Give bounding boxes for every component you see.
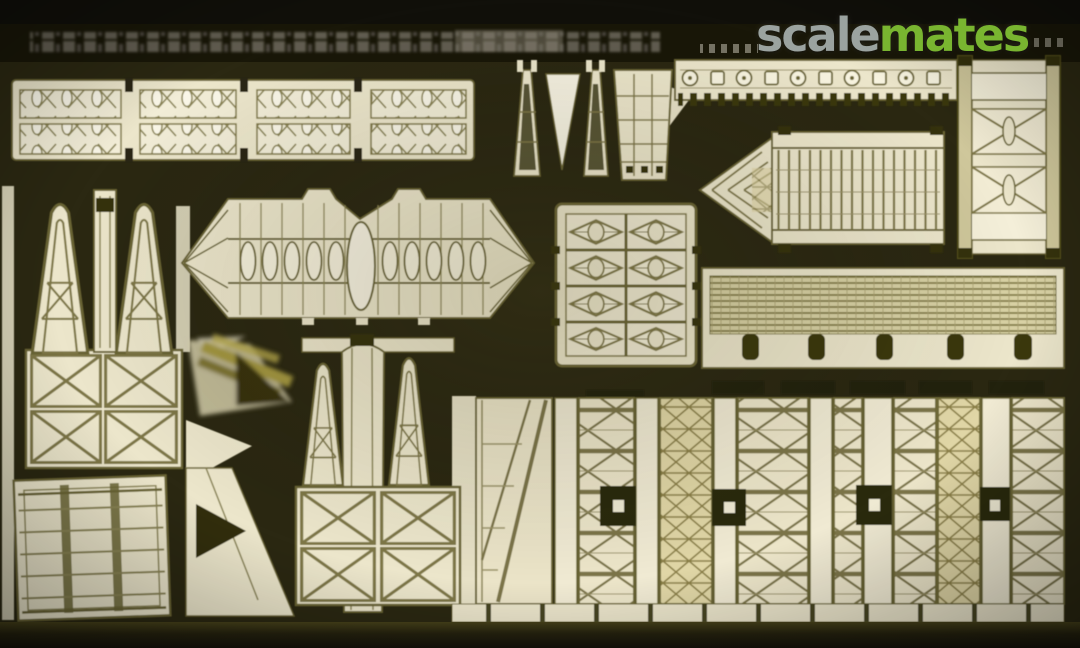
part-ladder-frame bbox=[958, 56, 1060, 258]
photo-etch-fret-photo bbox=[0, 0, 1080, 648]
part-mesh-panel bbox=[702, 268, 1064, 368]
film-bottom-band bbox=[0, 622, 1080, 648]
part-lens-lattice-frame bbox=[551, 204, 701, 366]
watermark-scale-text: scale bbox=[756, 8, 879, 62]
part-grid-hatch bbox=[14, 475, 171, 620]
sprue-rail-left bbox=[2, 186, 14, 620]
part-railing-strip bbox=[12, 78, 474, 162]
etched-label-text bbox=[30, 30, 660, 52]
product-photo: scalemates bbox=[0, 0, 1080, 648]
part-girder-columns bbox=[452, 398, 1064, 622]
watermark-mates-text: mates bbox=[879, 8, 1029, 62]
scalemates-watermark: scalemates bbox=[756, 12, 1028, 58]
logo-right-ticks bbox=[1034, 38, 1064, 47]
logo-left-ticks bbox=[700, 44, 758, 53]
sprue-rail-mid bbox=[176, 206, 190, 352]
part-railing-comb bbox=[675, 60, 957, 106]
